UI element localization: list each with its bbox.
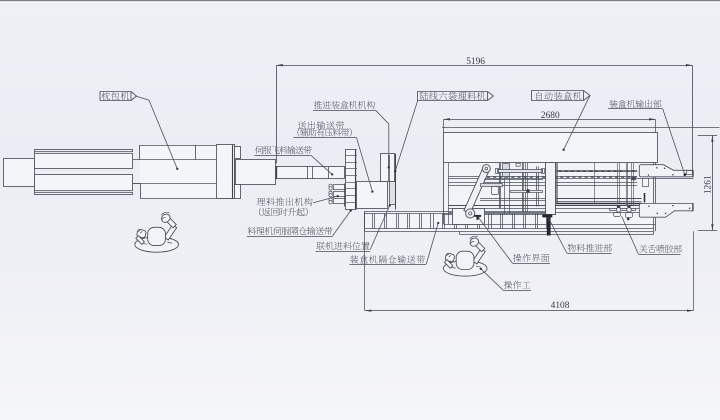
svg-text:4108: 4108 [551,301,570,311]
svg-text:5196: 5196 [466,57,485,67]
svg-text:2680: 2680 [541,111,560,121]
svg-text:1261: 1261 [704,175,714,194]
